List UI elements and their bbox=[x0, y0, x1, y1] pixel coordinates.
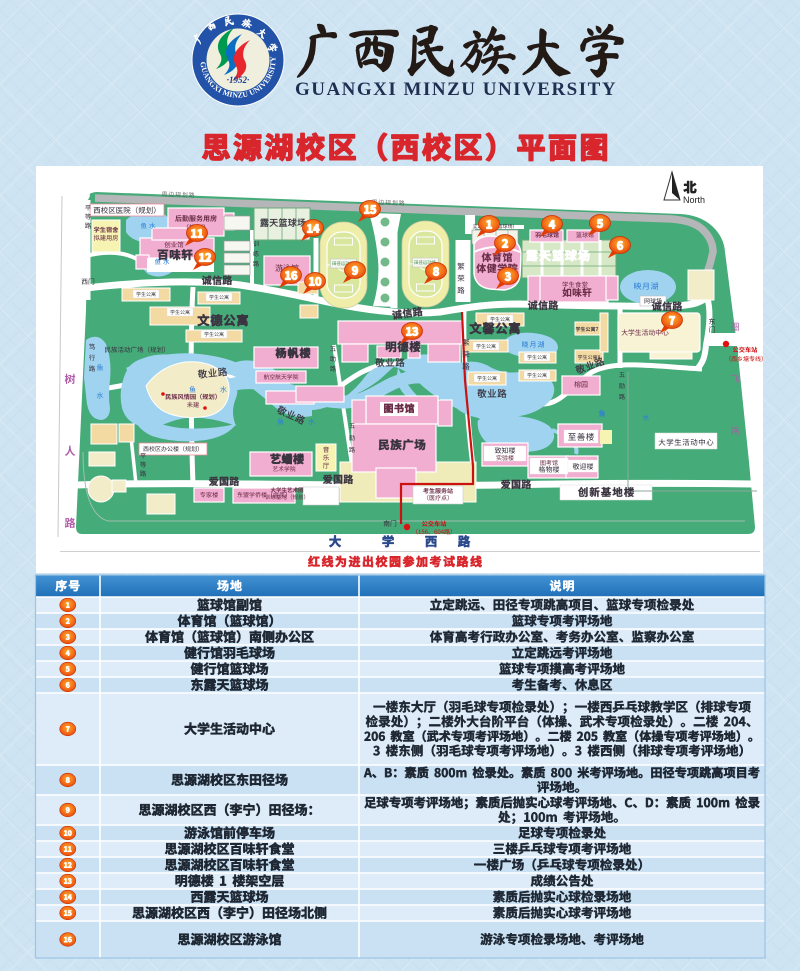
svg-text:·1952·: ·1952· bbox=[227, 75, 250, 85]
svg-text:GUANGXI MINZU UNIVERSITY: GUANGXI MINZU UNIVERSITY bbox=[295, 79, 617, 100]
svg-text:North: North bbox=[683, 195, 705, 205]
